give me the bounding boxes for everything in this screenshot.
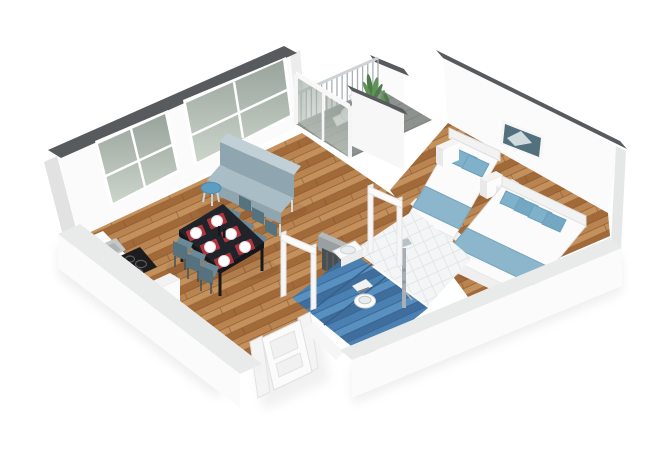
apartment-3d-render xyxy=(0,0,650,450)
floorplan-svg xyxy=(0,0,650,450)
